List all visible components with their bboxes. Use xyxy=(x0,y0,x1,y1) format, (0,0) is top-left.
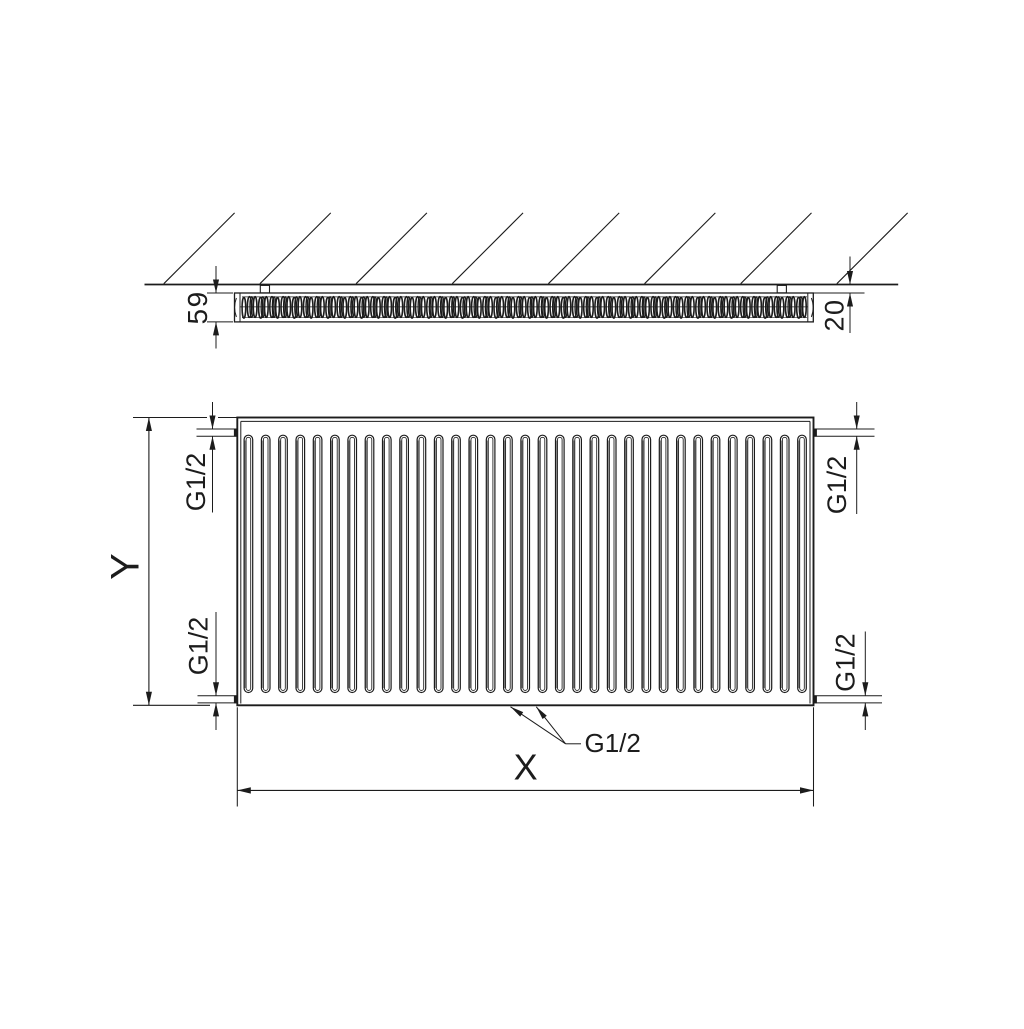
svg-text:20: 20 xyxy=(820,298,850,331)
svg-text:G1/2: G1/2 xyxy=(585,728,641,758)
svg-text:G1/2: G1/2 xyxy=(184,617,214,676)
svg-text:Y: Y xyxy=(104,553,148,580)
svg-text:X: X xyxy=(514,747,538,788)
svg-text:G1/2: G1/2 xyxy=(822,456,852,515)
svg-text:59: 59 xyxy=(182,290,213,324)
svg-text:G1/2: G1/2 xyxy=(181,453,211,512)
svg-text:G1/2: G1/2 xyxy=(831,633,861,692)
